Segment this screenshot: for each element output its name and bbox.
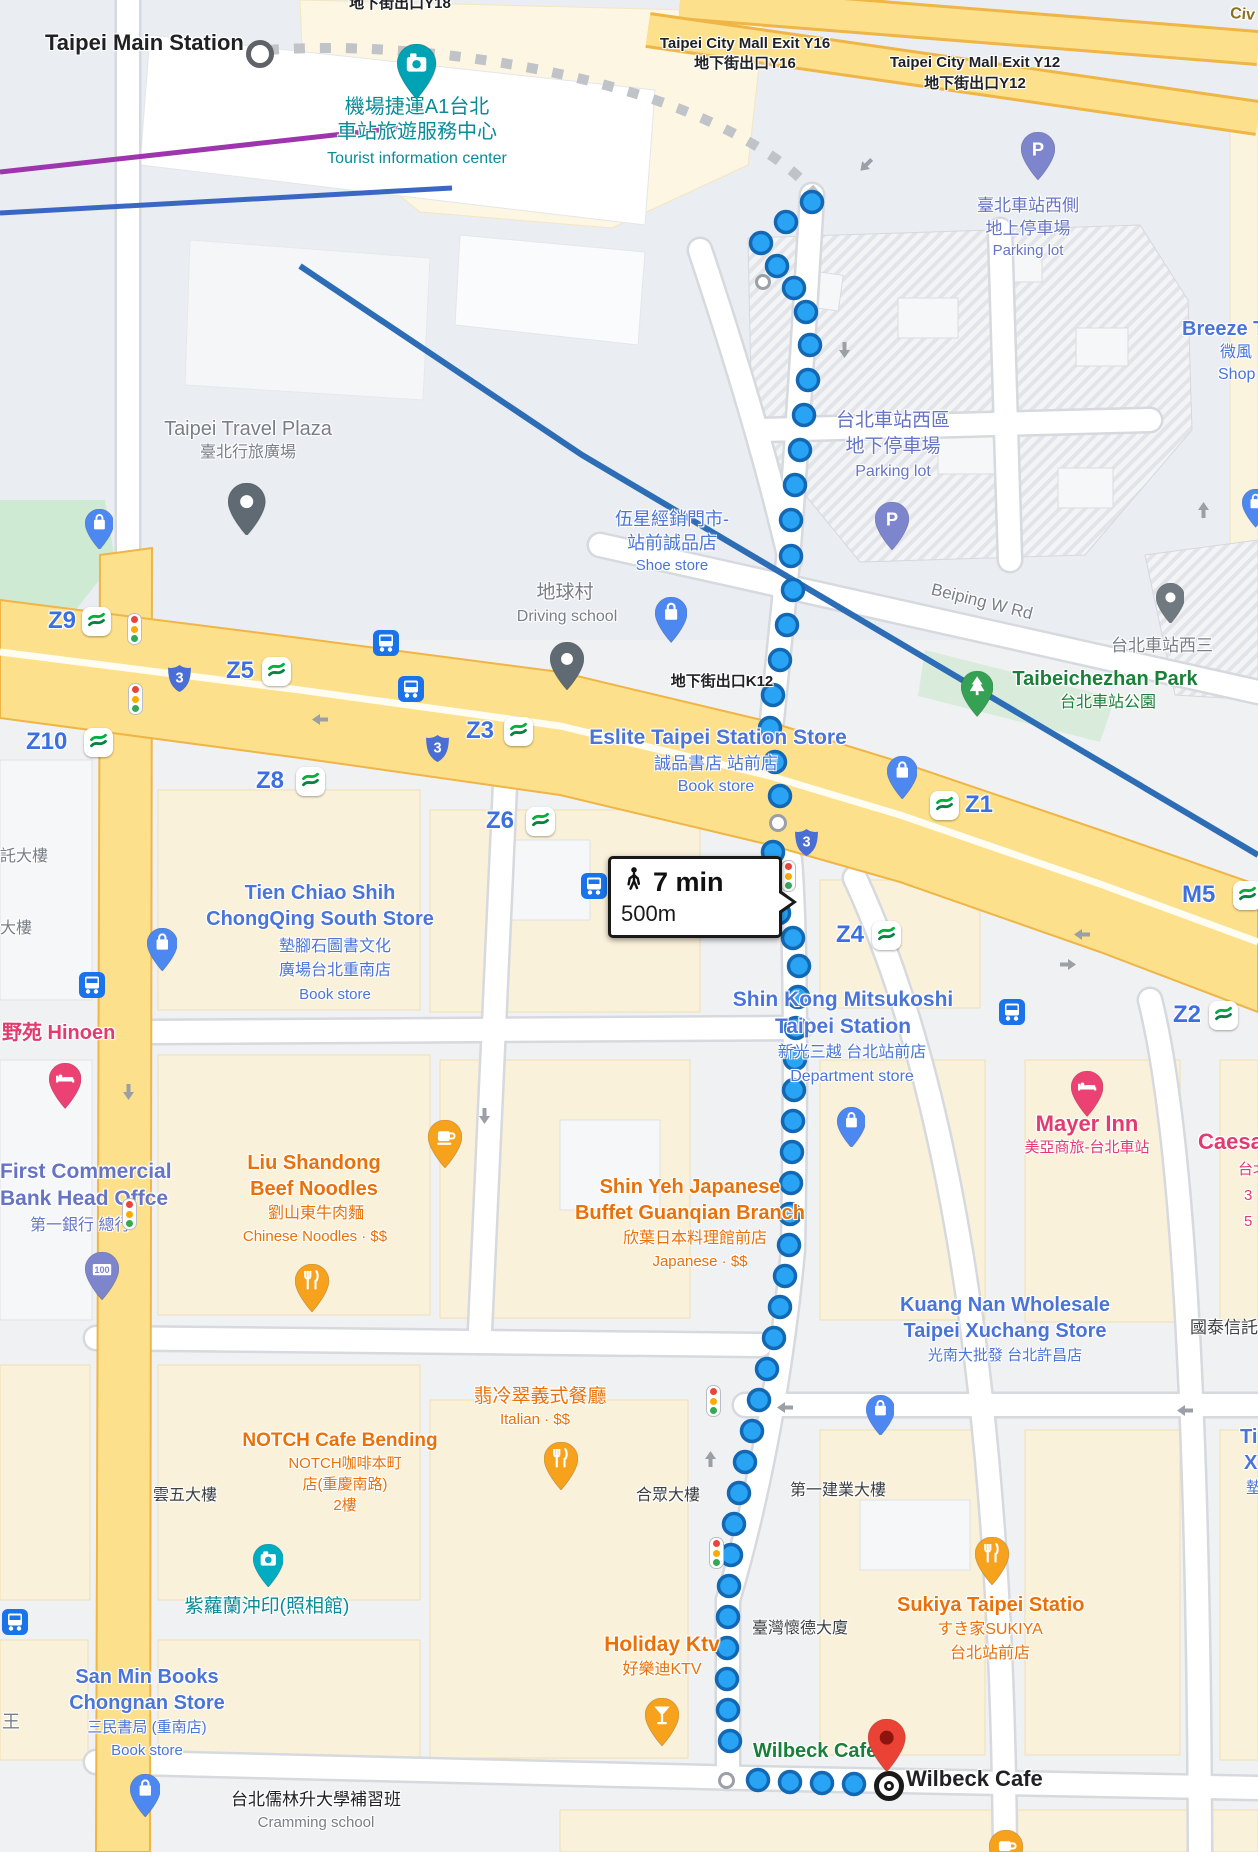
walk-distance: 500m xyxy=(621,901,771,927)
sanmin-4[interactable]: Book store xyxy=(111,1743,183,1760)
badge-pointer xyxy=(779,889,797,915)
exit-k12: 地下街出口K12 xyxy=(671,674,774,691)
waypoint-circle-3 xyxy=(718,1772,735,1789)
metro-swoosh-icon xyxy=(88,730,109,756)
firstbank-2[interactable]: Bank Head Offce xyxy=(0,1187,168,1211)
exit-z6-label[interactable]: Z6 xyxy=(486,808,514,835)
route-dot xyxy=(720,1731,741,1752)
notch-2[interactable]: NOTCH咖啡本町 xyxy=(288,1456,401,1473)
sukiya-3[interactable]: 台北站前店 xyxy=(950,1645,1030,1663)
road-arrow-2 xyxy=(834,342,852,358)
route-dot xyxy=(775,1266,796,1287)
walk-time-badge[interactable]: 7 min 500m xyxy=(608,856,782,938)
route-dot xyxy=(782,1142,803,1163)
exit-z1-label[interactable]: Z1 xyxy=(965,792,993,819)
route-dot xyxy=(776,212,797,233)
shoe-store-en[interactable]: Shoe store xyxy=(636,558,709,575)
route-dot xyxy=(844,1774,865,1795)
svg-text:3: 3 xyxy=(175,671,183,687)
da-building: 大樓 xyxy=(0,920,32,938)
shoe-store-zh1[interactable]: 伍星經銷門市- xyxy=(615,509,729,529)
exit-z9-label[interactable]: Z9 xyxy=(48,608,76,635)
bus-stop-2[interactable] xyxy=(398,676,424,702)
svg-text:100: 100 xyxy=(94,1265,109,1275)
road-arrow-10 xyxy=(1196,502,1214,518)
exit-z2-icon[interactable] xyxy=(1209,1001,1238,1030)
svg-text:P: P xyxy=(1032,138,1044,159)
milestone-100-pin[interactable]: 100 xyxy=(85,1252,119,1305)
west3-pin[interactable] xyxy=(1156,583,1185,629)
exit-z10-label[interactable]: Z10 xyxy=(26,729,67,756)
route-dot xyxy=(783,1111,804,1132)
zilan-pin[interactable] xyxy=(253,1544,284,1592)
dian-clip[interactable]: 墊 xyxy=(1246,1480,1258,1498)
route-dot xyxy=(790,440,811,461)
feilengcui-2[interactable]: Italian · $$ xyxy=(500,1412,570,1429)
parking-west-en[interactable]: Parking lot xyxy=(993,243,1064,260)
jianye: 第一建業大樓 xyxy=(790,1482,886,1500)
road-arrow-3 xyxy=(1074,924,1090,942)
route-dot xyxy=(770,650,791,671)
shoe-store-pin[interactable] xyxy=(655,597,687,648)
exit-z5-icon[interactable] xyxy=(262,657,291,686)
dept-pin-2[interactable] xyxy=(837,1107,866,1153)
bus-stop-6[interactable] xyxy=(2,1609,28,1635)
bus-stop-5[interactable] xyxy=(79,972,105,998)
metro-swoosh-icon xyxy=(1237,883,1258,909)
exit-z8-label[interactable]: Z8 xyxy=(256,768,284,795)
exit-m5-label[interactable]: M5 xyxy=(1182,882,1215,909)
parking-underground-en[interactable]: Parking lot xyxy=(855,463,931,481)
route-dot xyxy=(802,192,823,213)
route-dot xyxy=(751,233,772,254)
eslite-sub[interactable]: Book store xyxy=(678,778,754,796)
zilan[interactable]: 紫蘿蘭沖印(照相館) xyxy=(185,1596,350,1617)
exit-y16-en: Taipei City Mall Exit Y16 xyxy=(660,36,830,53)
firstbank-1[interactable]: First Commercial xyxy=(0,1160,172,1184)
tien-chiao-4[interactable]: 廣場台北重南店 xyxy=(279,962,391,980)
exit-y18: 地下街出口Y18 xyxy=(349,0,451,13)
tourist-center-zh2[interactable]: 車站旅遊服務中心 xyxy=(337,121,497,143)
bus-stop-3[interactable] xyxy=(581,873,607,899)
road-arrow-1 xyxy=(312,709,328,727)
shinkong-pin[interactable] xyxy=(887,756,918,804)
waypoint-circle-1 xyxy=(755,274,771,290)
ktv-pin[interactable] xyxy=(645,1698,679,1751)
shop-pin-edge[interactable] xyxy=(1242,489,1258,532)
route-dot xyxy=(742,1421,763,1442)
hinoen[interactable]: 野苑 Hinoen xyxy=(2,1022,115,1044)
parking-underground-zh2[interactable]: 地下停車場 xyxy=(845,436,940,457)
destination-marker[interactable] xyxy=(874,1771,904,1801)
hezhong: 合眾大樓 xyxy=(636,1487,700,1505)
sanmin-pin[interactable] xyxy=(130,1774,161,1822)
road-arrow-5 xyxy=(118,1084,136,1100)
notch-4[interactable]: 2樓 xyxy=(333,1498,356,1515)
route-dot xyxy=(770,1297,791,1318)
driving-school-pin[interactable] xyxy=(550,642,584,695)
caesar-en[interactable]: Caesa xyxy=(1198,1130,1258,1155)
exit-z6-icon[interactable] xyxy=(526,807,555,836)
road-arrow-4 xyxy=(1060,957,1076,975)
shinkong-3[interactable]: 新光三越 台北站前店 xyxy=(778,1044,926,1062)
light-6 xyxy=(709,1537,724,1569)
kuangnan-1[interactable]: Kuang Nan Wholesale xyxy=(900,1294,1110,1316)
route-dot xyxy=(757,1359,778,1380)
route-dot xyxy=(779,1235,800,1256)
route-dot xyxy=(748,1770,769,1791)
caesar-5[interactable]: 5 xyxy=(1244,1214,1252,1231)
cafe-pin-1[interactable] xyxy=(428,1120,462,1173)
mayer-pin[interactable] xyxy=(1071,1071,1103,1122)
holiday-ktv-en[interactable]: Holiday Ktv xyxy=(604,1633,720,1657)
cram-en: Cramming school xyxy=(258,1815,375,1832)
jianye-bag-pin[interactable] xyxy=(866,1395,895,1441)
route-dot xyxy=(729,1483,750,1504)
notch-3[interactable]: 店(重慶南路) xyxy=(303,1477,388,1494)
route-dot xyxy=(781,510,802,531)
metro-swoosh-icon xyxy=(1213,1003,1234,1029)
light-1 xyxy=(127,613,142,645)
sukiya-1[interactable]: Sukiya Taipei Statio xyxy=(897,1594,1084,1616)
route-dot xyxy=(735,1452,756,1473)
travel-plaza-zh[interactable]: 臺北行旅廣場 xyxy=(200,444,296,462)
cafe-pin-2[interactable] xyxy=(989,1830,1023,1852)
driving-school-en[interactable]: Driving school xyxy=(517,608,617,626)
route-dot xyxy=(718,1700,739,1721)
metro-swoosh-icon xyxy=(86,609,107,635)
route-dot xyxy=(780,1772,801,1793)
exit-z9-icon[interactable] xyxy=(82,607,111,636)
road-arrow-7 xyxy=(703,1451,721,1467)
tourist-info-pin[interactable] xyxy=(397,44,436,104)
parking-underground-pin[interactable]: P xyxy=(875,502,909,555)
liu-pin[interactable] xyxy=(295,1264,329,1317)
light-5 xyxy=(706,1385,721,1417)
metro-swoosh-icon xyxy=(300,769,321,795)
exit-m5-icon[interactable] xyxy=(1233,881,1258,910)
origin-label[interactable]: Taipei Main Station xyxy=(45,31,244,56)
civic-blvd: Civ xyxy=(1229,5,1255,25)
route-shield-3c: 3 xyxy=(793,828,820,862)
waypoint-circle-2 xyxy=(769,814,787,832)
exit-z4-icon[interactable] xyxy=(872,921,901,950)
route-dot xyxy=(783,580,804,601)
route-dot xyxy=(717,1669,738,1690)
light-4 xyxy=(781,860,796,892)
map-canvas[interactable]: 7 min 500m Taipei Main Station地下街出口Y18機場… xyxy=(0,0,1258,1852)
road-arrow-9 xyxy=(1177,1400,1193,1418)
parking-west-zh1[interactable]: 臺北車站西側 xyxy=(977,196,1079,215)
driving-school-zh[interactable]: 地球村 xyxy=(536,582,593,603)
metro-swoosh-icon xyxy=(934,793,955,819)
sukiya-pin[interactable] xyxy=(975,1537,1009,1590)
shinkong-4[interactable]: Department store xyxy=(790,1068,914,1086)
caesar-zh[interactable]: 台北 xyxy=(1238,1162,1258,1179)
metro-swoosh-icon xyxy=(508,719,529,745)
tuo-building: 託大樓 xyxy=(0,848,48,866)
tien-chiao-1[interactable]: Tien Chiao Shih xyxy=(245,882,396,904)
route-shield-3a: 3 xyxy=(166,664,193,698)
firstbank-3[interactable]: 第一銀行 總行 xyxy=(30,1217,130,1235)
route-dot xyxy=(783,928,804,949)
route-dot xyxy=(718,1607,739,1628)
exit-y12-en: Taipei City Mall Exit Y12 xyxy=(890,55,1060,72)
liu-1[interactable]: Liu Shandong xyxy=(247,1152,380,1174)
sukiya-2[interactable]: すき家SUKIYA xyxy=(937,1621,1043,1639)
svg-text:3: 3 xyxy=(433,741,441,757)
x-clip[interactable]: X xyxy=(1244,1452,1257,1474)
route-dot xyxy=(794,405,815,426)
feilengcui-pin[interactable] xyxy=(544,1442,578,1495)
svg-text:3: 3 xyxy=(802,835,810,851)
metro-swoosh-icon xyxy=(530,809,551,835)
tourist-center-en[interactable]: Tourist information center xyxy=(327,150,507,168)
exit-z10-icon[interactable] xyxy=(84,728,113,757)
liu-3[interactable]: 劉山東牛肉麵 xyxy=(268,1205,364,1223)
metro-swoosh-icon xyxy=(876,923,897,949)
tien-chiao-5[interactable]: Book store xyxy=(299,987,371,1004)
kuangnan-2[interactable]: Taipei Xuchang Store xyxy=(904,1320,1107,1342)
exit-y16-zh: 地下街出口Y16 xyxy=(694,56,796,73)
walking-person-icon xyxy=(621,865,647,900)
parking-underground-zh1[interactable]: 台北車站西區 xyxy=(836,410,950,431)
walk-duration: 7 min xyxy=(653,867,724,898)
sanmin-1[interactable]: San Min Books xyxy=(75,1666,218,1688)
route-dot xyxy=(749,1390,770,1411)
route-dot xyxy=(781,1173,802,1194)
liu-2[interactable]: Beef Noodles xyxy=(250,1178,378,1200)
cram-zh: 台北儒林升大學補習班 xyxy=(231,1790,401,1809)
bus-stop-4[interactable] xyxy=(999,999,1025,1025)
shinyeh-2[interactable]: Buffet Guanqian Branch xyxy=(575,1202,805,1224)
exit-z5-label[interactable]: Z5 xyxy=(226,658,254,685)
taibeichezhan-park-zh[interactable]: 台北車站公園 xyxy=(1060,694,1156,712)
wilbeck-black[interactable]: Wilbeck Cafe xyxy=(906,1767,1043,1792)
route-dot xyxy=(724,1514,745,1535)
travel-plaza-en[interactable]: Taipei Travel Plaza xyxy=(164,418,332,440)
exit-z4-label[interactable]: Z4 xyxy=(836,922,864,949)
route-dot xyxy=(798,370,819,391)
shinyeh-3[interactable]: 欣葉日本料理館前店 xyxy=(623,1230,767,1248)
travel-plaza-pin[interactable] xyxy=(228,483,265,541)
breeze-sub[interactable]: Shop xyxy=(1218,366,1255,384)
breeze-zh[interactable]: 微風 xyxy=(1220,344,1252,362)
hinoen-pin[interactable] xyxy=(49,1063,81,1114)
route-dot xyxy=(800,335,821,356)
park-tree-pin[interactable] xyxy=(961,671,993,722)
route-dot xyxy=(781,546,802,567)
destination-pin[interactable] xyxy=(868,1719,905,1777)
road-arrow-6 xyxy=(474,1108,492,1124)
light-3 xyxy=(122,1198,137,1230)
shinyeh-4[interactable]: Japanese · $$ xyxy=(652,1254,747,1271)
shoe-store-zh2[interactable]: 站前誠品店 xyxy=(627,533,717,553)
shinkong-2[interactable]: Taipei Station xyxy=(775,1015,911,1039)
route-dot xyxy=(719,1576,740,1597)
mayer-inn-zh[interactable]: 美亞商旅-台北車站 xyxy=(1025,1140,1150,1157)
route-dot xyxy=(764,1328,785,1349)
sanmin-3[interactable]: 三民書局 (重南店) xyxy=(87,1720,206,1737)
notch-1[interactable]: NOTCH Cafe Bending xyxy=(242,1430,437,1451)
exit-y12-zh: 地下街出口Y12 xyxy=(924,76,1026,93)
guotai: 國泰信託 xyxy=(1190,1318,1258,1337)
tien-chiao-2[interactable]: ChongQing South Store xyxy=(206,908,434,930)
feilengcui-1[interactable]: 翡冷翠義式餐廳 xyxy=(473,1386,606,1407)
bus-stop-1[interactable] xyxy=(373,630,399,656)
route-dot xyxy=(767,256,788,277)
exit-z8-icon[interactable] xyxy=(296,767,325,796)
wilbeck-green[interactable]: Wilbeck Cafe xyxy=(753,1740,877,1762)
route-dot xyxy=(784,278,805,299)
wang: 王 xyxy=(2,1712,20,1732)
exit-z2-label[interactable]: Z2 xyxy=(1173,1002,1201,1029)
route-dot xyxy=(812,1773,833,1794)
eslite-zh[interactable]: 誠品書店 站前店 xyxy=(654,754,778,773)
breeze-en[interactable]: Breeze T xyxy=(1182,318,1258,340)
exit-z3-label[interactable]: Z3 xyxy=(466,718,494,745)
liu-4[interactable]: Chinese Noodles · $$ xyxy=(243,1229,387,1246)
holiday-ktv-zh[interactable]: 好樂迪KTV xyxy=(622,1661,701,1679)
shinyeh-1[interactable]: Shin Yeh Japanese xyxy=(600,1176,781,1198)
exit-z1-icon[interactable] xyxy=(930,791,959,820)
road-arrow-8 xyxy=(777,1397,793,1415)
parking-west-zh2[interactable]: 地上停車場 xyxy=(986,219,1071,238)
ti-clip[interactable]: Ti xyxy=(1240,1426,1257,1448)
shinkong-1[interactable]: Shin Kong Mitsukoshi xyxy=(733,988,954,1012)
station-west3: 台北車站西三 xyxy=(1111,636,1213,655)
svg-text:P: P xyxy=(886,508,898,529)
shop-pin-1[interactable] xyxy=(85,509,114,555)
tien-chiao-3[interactable]: 墊腳石圖書文化 xyxy=(279,938,391,956)
taibeichezhan-park-en[interactable]: Taibeichezhan Park xyxy=(1012,668,1197,690)
exit-z3-icon[interactable] xyxy=(504,717,533,746)
route-dot xyxy=(785,475,806,496)
kuangnan-3[interactable]: 光南大批發 台北許昌店 xyxy=(928,1348,1082,1365)
caesar-3[interactable]: 3 xyxy=(1244,1188,1252,1205)
metro-swoosh-icon xyxy=(266,659,287,685)
sanmin-2[interactable]: Chongnan Store xyxy=(69,1692,225,1714)
route-shield-3b: 3 xyxy=(424,734,451,768)
route-dot xyxy=(789,956,810,977)
origin-marker[interactable] xyxy=(246,40,274,68)
yunwu: 雲五大樓 xyxy=(153,1487,217,1505)
route-dot xyxy=(770,786,791,807)
huaide: 臺灣懷德大廈 xyxy=(752,1620,848,1638)
route-dot xyxy=(777,615,798,636)
route-dot xyxy=(796,302,817,323)
light-2 xyxy=(128,683,143,715)
tien-chiao-pin[interactable] xyxy=(147,928,178,976)
parking-west-pin[interactable]: P xyxy=(1021,132,1055,185)
eslite-en[interactable]: Eslite Taipei Station Store xyxy=(589,726,847,750)
